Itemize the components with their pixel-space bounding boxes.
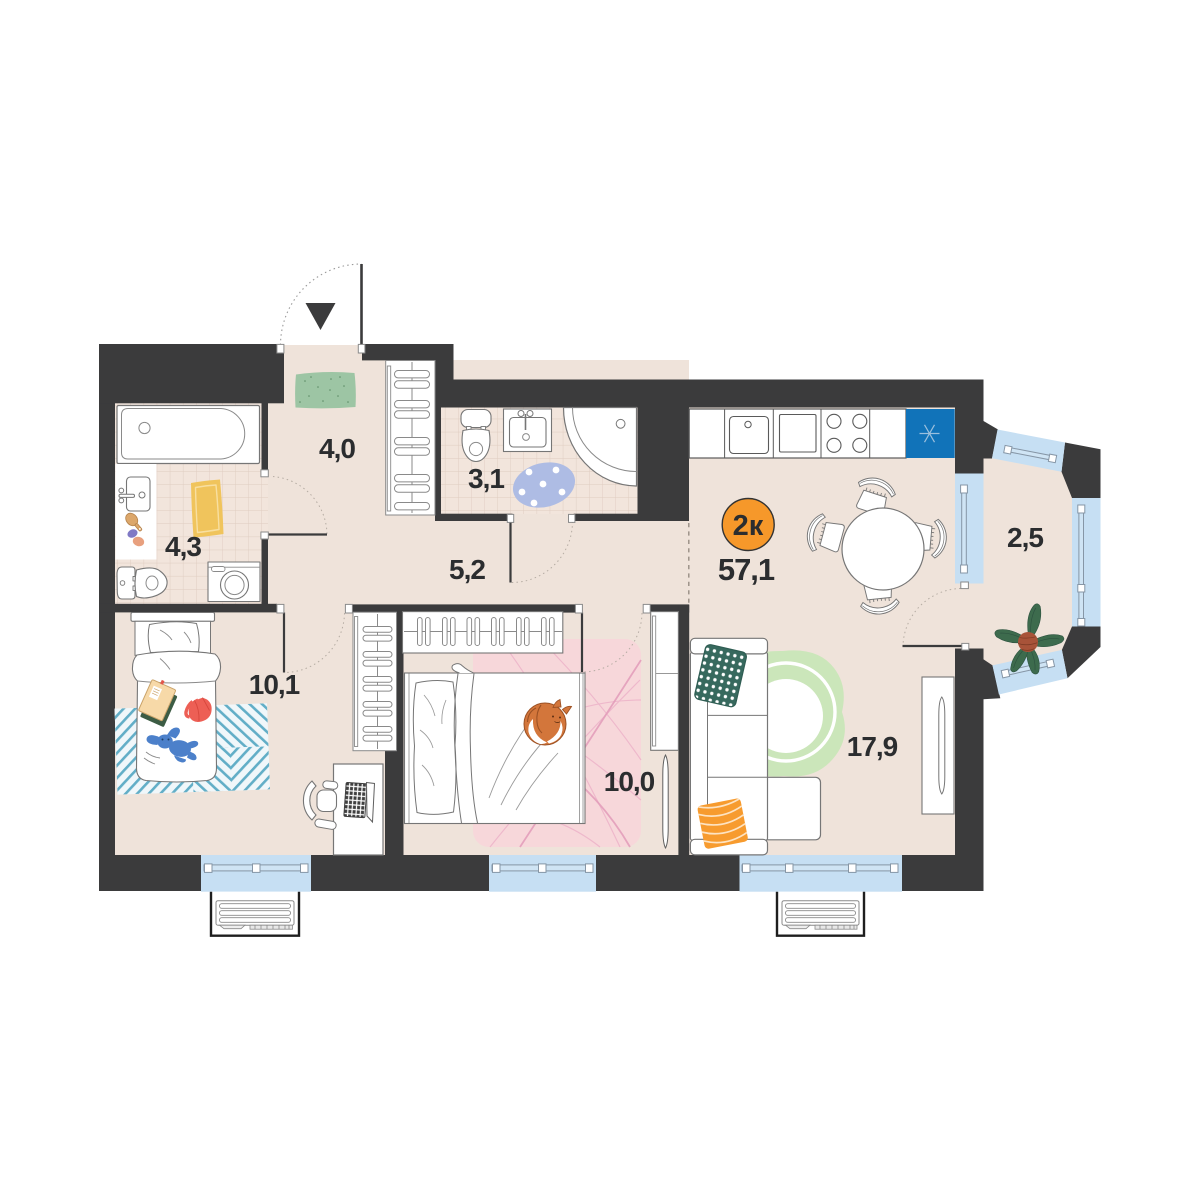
svg-text:3,1: 3,1 xyxy=(468,463,504,494)
svg-text:4,0: 4,0 xyxy=(319,433,355,464)
svg-text:57,1: 57,1 xyxy=(718,552,775,587)
svg-text:17,9: 17,9 xyxy=(847,731,898,762)
svg-text:2к: 2к xyxy=(733,510,764,542)
svg-text:10,0: 10,0 xyxy=(604,766,655,797)
svg-text:5,2: 5,2 xyxy=(449,554,485,585)
svg-text:4,3: 4,3 xyxy=(165,531,201,562)
svg-text:2,5: 2,5 xyxy=(1007,522,1043,553)
svg-text:10,1: 10,1 xyxy=(249,669,300,700)
